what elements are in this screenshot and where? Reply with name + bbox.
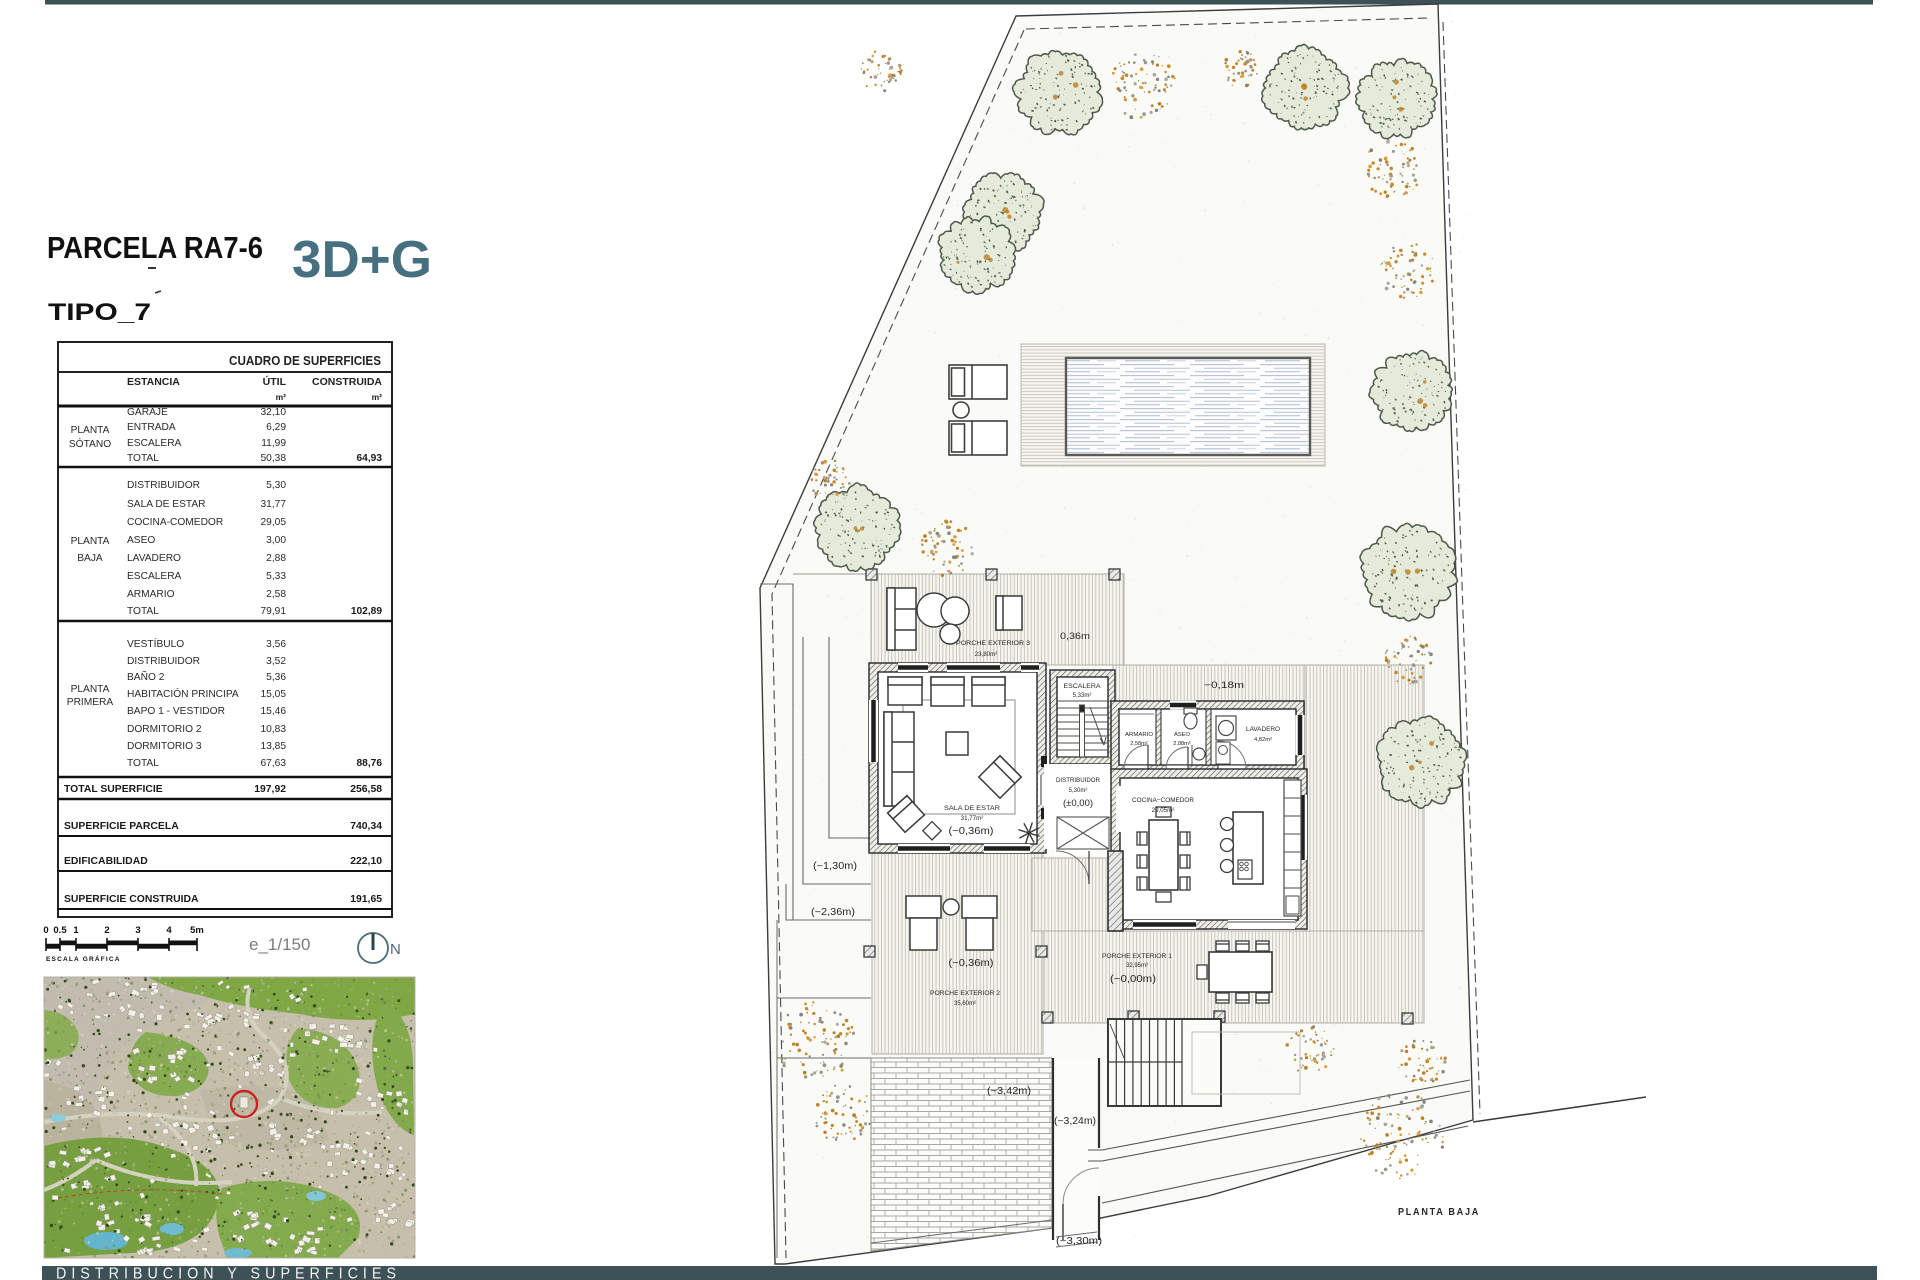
svg-text:N: N bbox=[390, 941, 401, 958]
svg-text:32,95m²: 32,95m² bbox=[1126, 963, 1148, 969]
svg-text:10,83: 10,83 bbox=[261, 724, 287, 735]
svg-text:SUPERFICIE CONSTRUIDA: SUPERFICIE CONSTRUIDA bbox=[64, 894, 199, 905]
svg-text:ARMARIO: ARMARIO bbox=[127, 589, 175, 600]
svg-text:6,29: 6,29 bbox=[266, 422, 286, 433]
svg-text:LAVADERO: LAVADERO bbox=[1246, 727, 1280, 733]
svg-text:102,89: 102,89 bbox=[351, 606, 382, 617]
svg-text:5,33: 5,33 bbox=[266, 571, 286, 582]
svg-text:29,05: 29,05 bbox=[261, 517, 287, 528]
svg-text:ASEO: ASEO bbox=[127, 535, 155, 546]
svg-text:(−3,42m): (−3,42m) bbox=[987, 1086, 1031, 1097]
svg-text:−0,18m: −0,18m bbox=[1204, 680, 1244, 691]
svg-text:PARCELA RA7-6: PARCELA RA7-6 bbox=[47, 230, 263, 265]
svg-text:LAVADERO: LAVADERO bbox=[127, 553, 181, 564]
svg-text:50,38: 50,38 bbox=[261, 453, 287, 464]
svg-text:PLANTA: PLANTA bbox=[71, 684, 110, 695]
svg-text:64,93: 64,93 bbox=[357, 453, 383, 464]
svg-text:PORCHE EXTERIOR 1: PORCHE EXTERIOR 1 bbox=[1102, 953, 1172, 960]
svg-text:ÚTIL: ÚTIL bbox=[263, 375, 287, 388]
svg-text:5,36: 5,36 bbox=[266, 672, 286, 683]
svg-text:5,33m²: 5,33m² bbox=[1073, 693, 1092, 699]
svg-text:2: 2 bbox=[104, 925, 109, 936]
svg-text:(−3,30m): (−3,30m) bbox=[1056, 1236, 1102, 1247]
svg-text:(−2,36m): (−2,36m) bbox=[811, 907, 855, 918]
svg-text:m²: m² bbox=[276, 392, 287, 402]
svg-text:DISTRIBUIDOR: DISTRIBUIDOR bbox=[127, 656, 200, 667]
svg-text:GARAJE: GARAJE bbox=[127, 407, 168, 418]
svg-text:SUPERFICIE PARCELA: SUPERFICIE PARCELA bbox=[64, 821, 179, 832]
svg-text:256,58: 256,58 bbox=[350, 784, 382, 795]
svg-text:DORMITORIO 2: DORMITORIO 2 bbox=[127, 724, 202, 735]
svg-text:SALA DE ESTAR: SALA DE ESTAR bbox=[944, 805, 1000, 812]
svg-text:DORMITORIO 3: DORMITORIO 3 bbox=[127, 741, 202, 752]
svg-text:PLANTA BAJA: PLANTA BAJA bbox=[1398, 1206, 1480, 1218]
svg-text:BAÑO 2: BAÑO 2 bbox=[127, 670, 165, 683]
svg-text:23,80m²: 23,80m² bbox=[975, 651, 998, 658]
svg-text:67,63: 67,63 bbox=[261, 758, 287, 769]
svg-text:(−0,00m): (−0,00m) bbox=[1110, 974, 1156, 985]
svg-text:TIPO_7: TIPO_7 bbox=[48, 299, 151, 326]
svg-text:ENTRADA: ENTRADA bbox=[127, 422, 176, 433]
svg-text:TOTAL SUPERFICIE: TOTAL SUPERFICIE bbox=[64, 784, 163, 795]
svg-text:35,60m²: 35,60m² bbox=[954, 1001, 976, 1007]
svg-text:SALA DE ESTAR: SALA DE ESTAR bbox=[127, 499, 206, 510]
svg-text:740,34: 740,34 bbox=[350, 821, 382, 832]
svg-text:PLANTA: PLANTA bbox=[71, 536, 110, 547]
svg-text:5,30: 5,30 bbox=[266, 480, 286, 491]
svg-text:3,00: 3,00 bbox=[266, 535, 286, 546]
svg-text:e_1/150: e_1/150 bbox=[249, 935, 310, 954]
svg-text:2,58m²: 2,58m² bbox=[1130, 741, 1148, 747]
svg-text:ARMARIO: ARMARIO bbox=[1125, 732, 1153, 738]
svg-text:3: 3 bbox=[135, 925, 140, 936]
svg-text:29,05m²: 29,05m² bbox=[1152, 807, 1175, 814]
svg-text:ESCALERA: ESCALERA bbox=[127, 571, 182, 582]
svg-text:15,46: 15,46 bbox=[261, 706, 287, 717]
svg-text:191,65: 191,65 bbox=[350, 894, 382, 905]
svg-text:COCINA−COMEDOR: COCINA−COMEDOR bbox=[1132, 797, 1194, 804]
svg-text:31,77m²: 31,77m² bbox=[961, 815, 984, 822]
svg-text:79,91: 79,91 bbox=[261, 606, 287, 617]
svg-text:(−0,36m): (−0,36m) bbox=[949, 826, 994, 837]
svg-text:PORCHE EXTERIOR 2: PORCHE EXTERIOR 2 bbox=[930, 990, 1000, 997]
svg-text:2,88m²: 2,88m² bbox=[1173, 741, 1191, 747]
svg-text:ESCALERA: ESCALERA bbox=[127, 438, 182, 449]
svg-text:(−0,36m): (−0,36m) bbox=[949, 958, 994, 969]
svg-text:2,58: 2,58 bbox=[266, 589, 286, 600]
svg-text:m²: m² bbox=[372, 392, 383, 402]
svg-text:COCINA-COMEDOR: COCINA-COMEDOR bbox=[127, 517, 223, 528]
svg-text:VESTÍBULO: VESTÍBULO bbox=[127, 637, 184, 650]
svg-text:CUADRO DE SUPERFICIES: CUADRO DE SUPERFICIES bbox=[229, 354, 381, 368]
svg-text:5m: 5m bbox=[190, 925, 204, 936]
svg-text:3,52: 3,52 bbox=[266, 656, 286, 667]
svg-text:PRIMERA: PRIMERA bbox=[67, 697, 114, 708]
svg-text:4,82m²: 4,82m² bbox=[1254, 737, 1272, 743]
svg-text:5,30m²: 5,30m² bbox=[1069, 788, 1088, 794]
svg-text:ESTANCIA: ESTANCIA bbox=[127, 376, 180, 388]
svg-text:3D+G: 3D+G bbox=[292, 231, 432, 289]
svg-text:0: 0 bbox=[43, 925, 48, 936]
svg-text:ASEO: ASEO bbox=[1174, 732, 1191, 738]
svg-text:HABITACIÓN PRINCIPA: HABITACIÓN PRINCIPA bbox=[127, 687, 239, 700]
svg-text:CONSTRUIDA: CONSTRUIDA bbox=[312, 376, 382, 388]
svg-text:BAPO 1 - VESTIDOR: BAPO 1 - VESTIDOR bbox=[127, 706, 225, 717]
svg-text:SÓTANO: SÓTANO bbox=[69, 437, 111, 450]
svg-text:13,85: 13,85 bbox=[261, 741, 287, 752]
svg-text:0,36m: 0,36m bbox=[1060, 631, 1090, 642]
svg-text:31,77: 31,77 bbox=[261, 499, 287, 510]
svg-text:222,10: 222,10 bbox=[350, 856, 382, 867]
svg-text:11,99: 11,99 bbox=[261, 438, 286, 449]
svg-text:EDIFICABILIDAD: EDIFICABILIDAD bbox=[64, 856, 148, 867]
svg-text:32,10: 32,10 bbox=[261, 407, 287, 418]
svg-text:DISTRIBUIDOR: DISTRIBUIDOR bbox=[127, 480, 200, 491]
svg-text:0.5: 0.5 bbox=[53, 925, 67, 936]
svg-text:(±0,00): (±0,00) bbox=[1063, 798, 1093, 809]
svg-text:(−3,24m): (−3,24m) bbox=[1054, 1116, 1096, 1127]
svg-text:15,05: 15,05 bbox=[261, 689, 287, 700]
svg-text:PLANTA: PLANTA bbox=[71, 425, 110, 436]
svg-text:197,92: 197,92 bbox=[254, 784, 286, 795]
svg-text:TOTAL: TOTAL bbox=[127, 606, 159, 617]
svg-text:ESCALA GRÁFICA: ESCALA GRÁFICA bbox=[46, 954, 121, 963]
svg-text:1: 1 bbox=[73, 925, 79, 936]
svg-text:3,56: 3,56 bbox=[266, 639, 286, 650]
svg-text:TOTAL: TOTAL bbox=[127, 453, 159, 464]
svg-text:(−1,30m): (−1,30m) bbox=[813, 861, 857, 872]
svg-text:88,76: 88,76 bbox=[357, 758, 383, 769]
svg-text:TOTAL: TOTAL bbox=[127, 758, 159, 769]
svg-text:PORCHE EXTERIOR 3: PORCHE EXTERIOR 3 bbox=[956, 640, 1030, 647]
svg-text:4: 4 bbox=[166, 925, 172, 936]
svg-text:2,88: 2,88 bbox=[266, 553, 286, 564]
svg-text:DISTRIBUIDOR: DISTRIBUIDOR bbox=[1056, 777, 1101, 784]
svg-text:ESCALERA: ESCALERA bbox=[1064, 683, 1102, 690]
svg-text:BAJA: BAJA bbox=[77, 553, 103, 564]
